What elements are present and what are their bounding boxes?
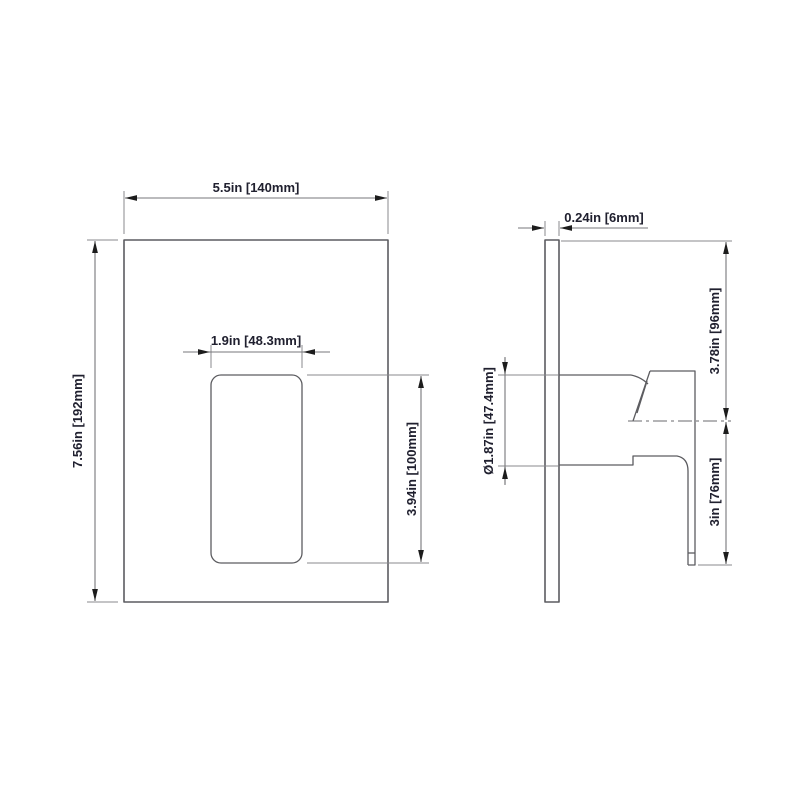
plate-width-label: 5.5in [140mm] [213, 180, 300, 195]
handle-width-label: 1.9in [48.3mm] [211, 333, 301, 348]
lever-front-face-inner-edge [637, 381, 647, 413]
lower-height-label: 3in [76mm] [707, 458, 722, 527]
plate-height-label: 7.56in [192mm] [70, 374, 85, 468]
plate-thickness-label: 0.24in [6mm] [564, 210, 643, 225]
dimension-plate-width: 5.5in [140mm] [124, 180, 388, 234]
dimension-lower-height: 3in [76mm] [698, 422, 732, 565]
dimension-handle-width: 1.9in [48.3mm] [183, 333, 330, 368]
side-view [545, 240, 731, 602]
dimension-plate-thickness: 0.24in [6mm] [518, 210, 648, 236]
lever-handle-front [211, 375, 302, 563]
dimension-plate-height: 7.56in [192mm] [70, 240, 118, 602]
dimension-upper-height: 3.78in [96mm] [561, 241, 732, 420]
front-view [124, 240, 388, 602]
technical-drawing-canvas: 5.5in [140mm] 7.56in [192mm] 1.9in [48.3… [0, 0, 800, 800]
trim-plate-side [545, 240, 559, 602]
handle-height-label: 3.94in [100mm] [404, 422, 419, 516]
trim-plate-front [124, 240, 388, 602]
dimension-handle-height: 3.94in [100mm] [307, 375, 429, 563]
dimension-valve-diameter: Ø1.87in [47.4mm] [481, 357, 558, 485]
upper-height-label: 3.78in [96mm] [707, 288, 722, 375]
valve-body-bottom-and-lever-inner-edge [559, 456, 688, 565]
technical-drawing: 5.5in [140mm] 7.56in [192mm] 1.9in [48.3… [0, 0, 800, 800]
valve-diameter-label: Ø1.87in [47.4mm] [481, 367, 496, 475]
